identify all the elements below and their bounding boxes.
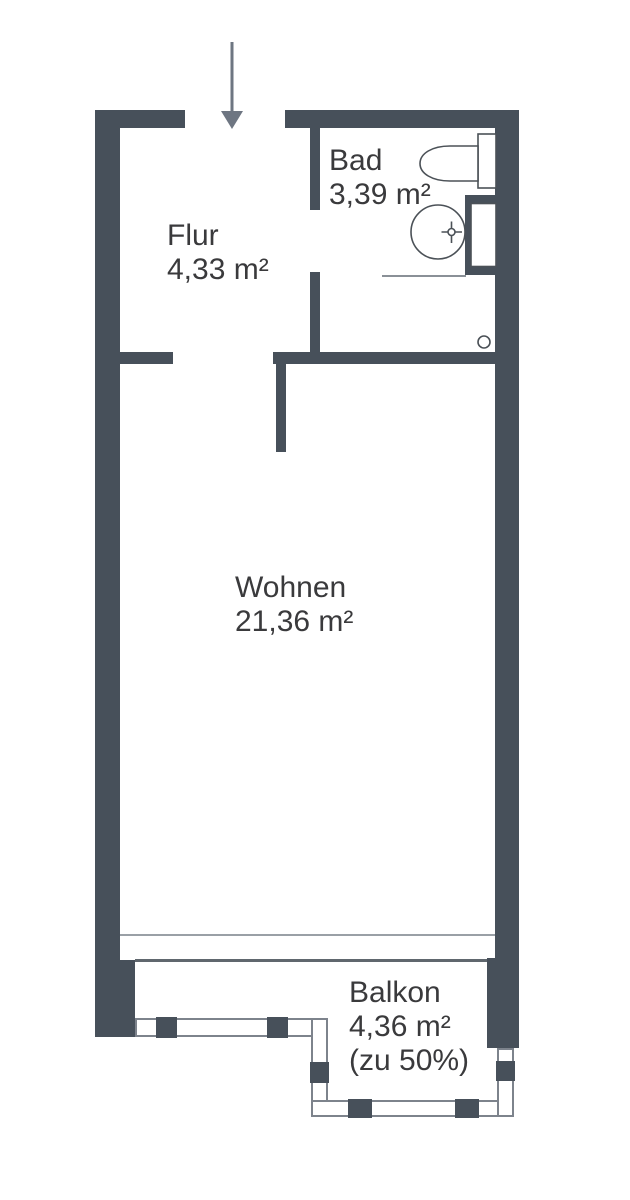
railing-post <box>310 1062 329 1083</box>
room-name: Wohnen <box>235 571 353 605</box>
window-glass-line <box>135 959 487 962</box>
room-label-bad: Bad 3,39 m² <box>329 144 431 212</box>
railing-right-vertical-segment <box>497 1048 514 1117</box>
room-label-flur: Flur 4,33 m² <box>167 219 269 287</box>
railing-post <box>348 1099 372 1118</box>
room-name: Balkon <box>349 976 469 1010</box>
room-name: Bad <box>329 144 431 178</box>
wall-flur-bottom-left <box>119 352 173 364</box>
railing-post <box>496 1061 515 1081</box>
room-label-wohnen: Wohnen 21,36 m² <box>235 571 353 639</box>
railing-post <box>156 1017 177 1038</box>
wall-right <box>495 110 519 960</box>
wall-bad-left-upper <box>310 128 320 210</box>
room-note: (zu 50%) <box>349 1044 469 1078</box>
railing-post <box>455 1099 479 1118</box>
room-area: 21,36 m² <box>235 605 353 639</box>
railing-bottom-segment <box>311 1100 514 1117</box>
railing-post <box>267 1017 288 1038</box>
toilet-icon <box>420 134 496 188</box>
wall-wohnen-niche-stub <box>276 352 286 452</box>
room-area: 4,36 m² <box>349 1010 469 1044</box>
entrance-arrow-icon <box>221 42 243 129</box>
wall-bad-duct-protrusion <box>465 195 495 275</box>
balcony-pillar-right <box>487 958 519 1048</box>
wall-bad-left-lower <box>310 272 320 353</box>
wall-top-right <box>285 110 519 128</box>
balcony-pillar-left <box>120 960 135 1037</box>
room-area: 3,39 m² <box>329 178 431 212</box>
wall-left <box>95 110 120 1037</box>
room-label-balkon: Balkon 4,36 m² (zu 50%) <box>349 976 469 1078</box>
room-area: 4,33 m² <box>167 253 269 287</box>
window-sill-line <box>120 934 495 936</box>
sink-icon <box>411 205 465 259</box>
floor-plan: Flur 4,33 m² Bad 3,39 m² Wohnen 21,36 m²… <box>0 0 630 1200</box>
shower-edge-line <box>382 275 466 277</box>
wall-flur-bad-bottom <box>273 352 495 364</box>
drain-icon <box>478 336 490 348</box>
room-name: Flur <box>167 219 269 253</box>
